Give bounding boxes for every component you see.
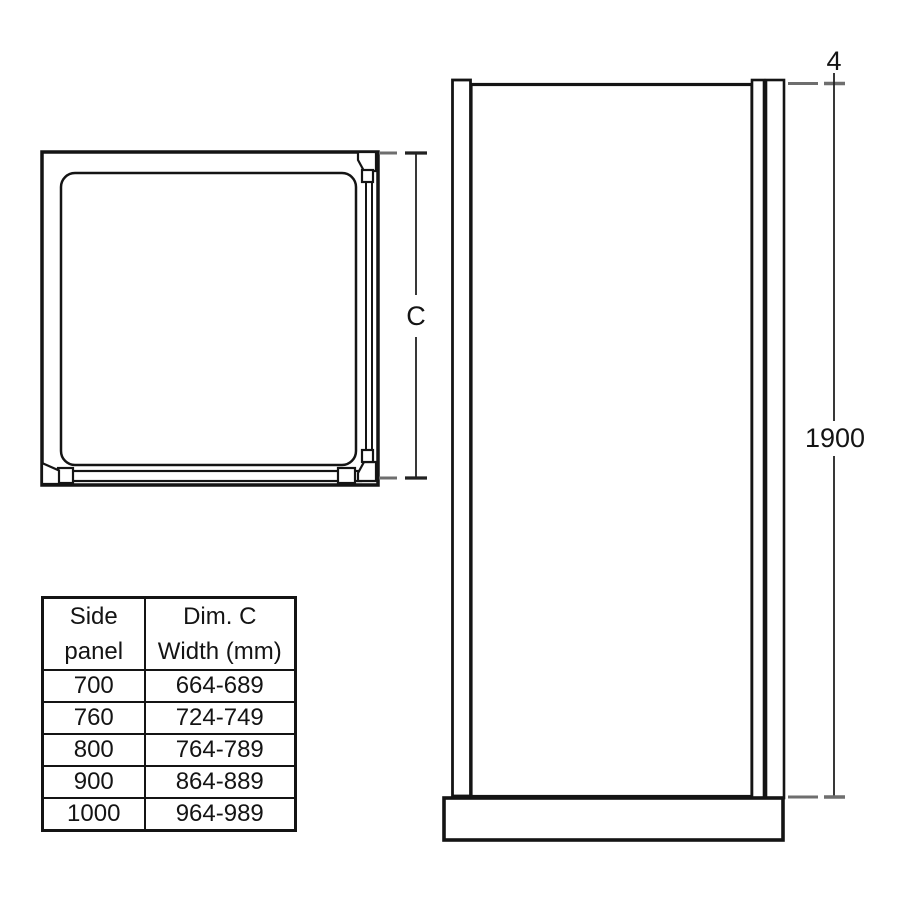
plan-front-frame-right-block — [338, 468, 355, 483]
plan-front-frame-bar — [58, 471, 361, 481]
plan-view — [42, 152, 378, 485]
elevation-wall-profile-left — [453, 80, 471, 796]
table-cell-width: 964-989 — [145, 798, 296, 831]
dimension-c: C — [379, 153, 427, 478]
table-row: 700 664-689 — [43, 670, 296, 702]
elevation-panel-edge-profile — [752, 80, 764, 798]
table-row: 900 864-889 — [43, 766, 296, 798]
spec-table-header-dim-c-width: Dim. C Width (mm) — [145, 598, 296, 671]
table-cell-panel: 800 — [43, 734, 145, 766]
dim-c-label: C — [406, 301, 426, 331]
table-cell-panel: 700 — [43, 670, 145, 702]
dimension-1900: 4 1900 — [788, 46, 865, 797]
elevation-shower-tray — [444, 798, 783, 840]
shower-side-panel-technical-drawing: C 4 1900 — [0, 0, 900, 900]
elevation-view — [444, 80, 784, 840]
plan-shower-tray — [61, 173, 356, 465]
table-cell-width: 724-749 — [145, 702, 296, 734]
table-cell-width: 864-889 — [145, 766, 296, 798]
plan-wall-bracket-bottom-clamp — [362, 450, 373, 462]
table-row: 760 724-749 — [43, 702, 296, 734]
plan-side-panel-glass — [366, 182, 372, 462]
plan-wall-bracket-top-clamp — [362, 170, 373, 182]
plan-front-frame-left-block — [58, 468, 73, 483]
dim-1900-label: 1900 — [805, 423, 865, 453]
table-cell-panel: 1000 — [43, 798, 145, 831]
elevation-wall-profile-right — [766, 80, 784, 798]
table-row: 800 764-789 — [43, 734, 296, 766]
spec-table: Side panel Dim. C Width (mm) 700 664-689… — [41, 596, 297, 832]
elevation-glass-panel — [471, 85, 752, 797]
spec-table-header-side-panel: Side panel — [43, 598, 145, 671]
table-cell-panel: 900 — [43, 766, 145, 798]
table-cell-panel: 760 — [43, 702, 145, 734]
table-cell-width: 764-789 — [145, 734, 296, 766]
dim-4-label: 4 — [826, 46, 841, 76]
spec-table-header-row: Side panel Dim. C Width (mm) — [43, 598, 296, 671]
table-row: 1000 964-989 — [43, 798, 296, 831]
table-cell-width: 664-689 — [145, 670, 296, 702]
